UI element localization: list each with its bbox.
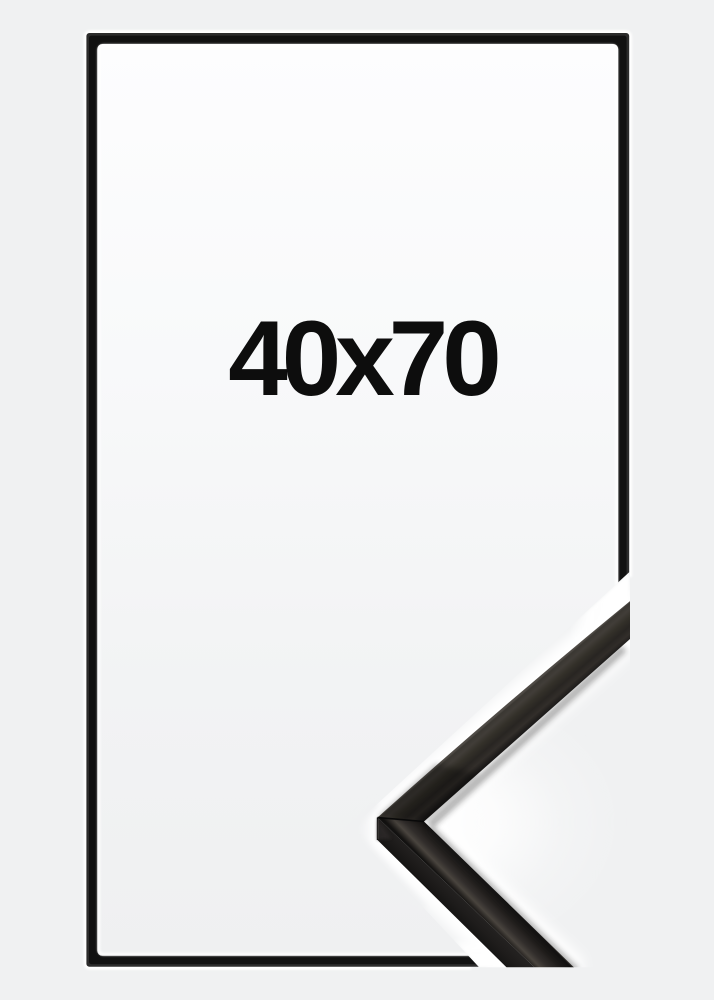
svg-text:40x70: 40x70 (228, 298, 498, 418)
